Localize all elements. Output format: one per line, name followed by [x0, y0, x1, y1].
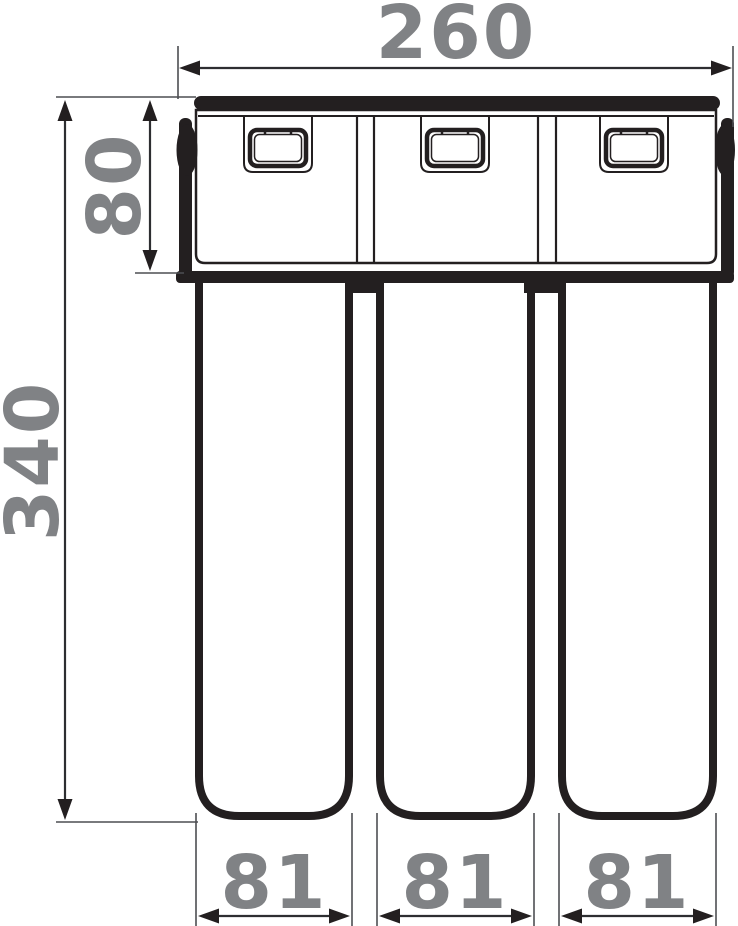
arrow-down-icon — [143, 250, 158, 271]
dimension-text-cartridge-1-width: 81 — [221, 840, 328, 926]
head-right-clip — [715, 124, 735, 176]
filter-cartridge-2 — [380, 276, 531, 816]
arrow-down-icon — [58, 799, 73, 820]
filter-unit-technical-drawing: 260 80 340 81 81 81 — [0, 0, 738, 926]
head-top-bar — [194, 96, 720, 110]
dimension-text-cartridge-3-width: 81 — [584, 840, 691, 926]
arrow-right-icon — [711, 61, 732, 76]
head-bottom-bar — [176, 271, 734, 283]
filter-cartridge-1 — [199, 276, 349, 816]
arrow-up-icon — [143, 100, 158, 121]
port-outer — [606, 130, 662, 166]
arrow-right-icon — [693, 909, 714, 924]
port-outer — [250, 130, 306, 166]
head-connector-stub — [524, 280, 560, 293]
dimension-text-overall-height: 340 — [0, 381, 76, 541]
arrow-left-icon — [561, 909, 582, 924]
head-connector-stub — [346, 280, 382, 293]
arrow-left-icon — [379, 909, 400, 924]
drawing-canvas: 260 80 340 81 81 81 — [0, 0, 738, 926]
filter-head — [176, 96, 735, 293]
arrow-right-icon — [329, 909, 350, 924]
arrow-up-icon — [58, 100, 73, 121]
head-left-clip — [177, 124, 198, 176]
dimension-text-overall-width: 260 — [376, 0, 536, 76]
filter-cartridge-3 — [562, 276, 713, 816]
arrow-right-icon — [511, 909, 532, 924]
dimension-text-head-height: 80 — [72, 133, 158, 240]
port-outer — [427, 130, 483, 166]
arrow-left-icon — [198, 909, 219, 924]
dimension-text-cartridge-2-width: 81 — [402, 840, 509, 926]
filter-cartridges — [199, 276, 713, 816]
arrow-left-icon — [179, 61, 200, 76]
